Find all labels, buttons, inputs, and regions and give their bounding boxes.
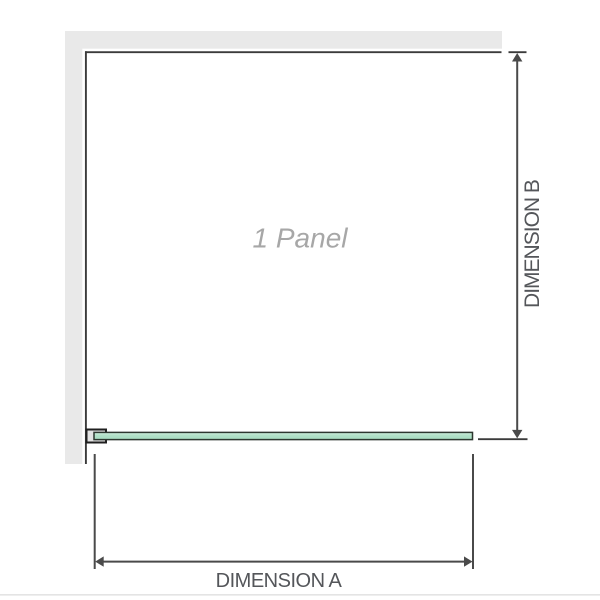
svg-text:1 Panel: 1 Panel xyxy=(253,223,349,254)
svg-text:DIMENSION A: DIMENSION A xyxy=(216,570,343,592)
svg-text:DIMENSION B: DIMENSION B xyxy=(521,180,544,308)
